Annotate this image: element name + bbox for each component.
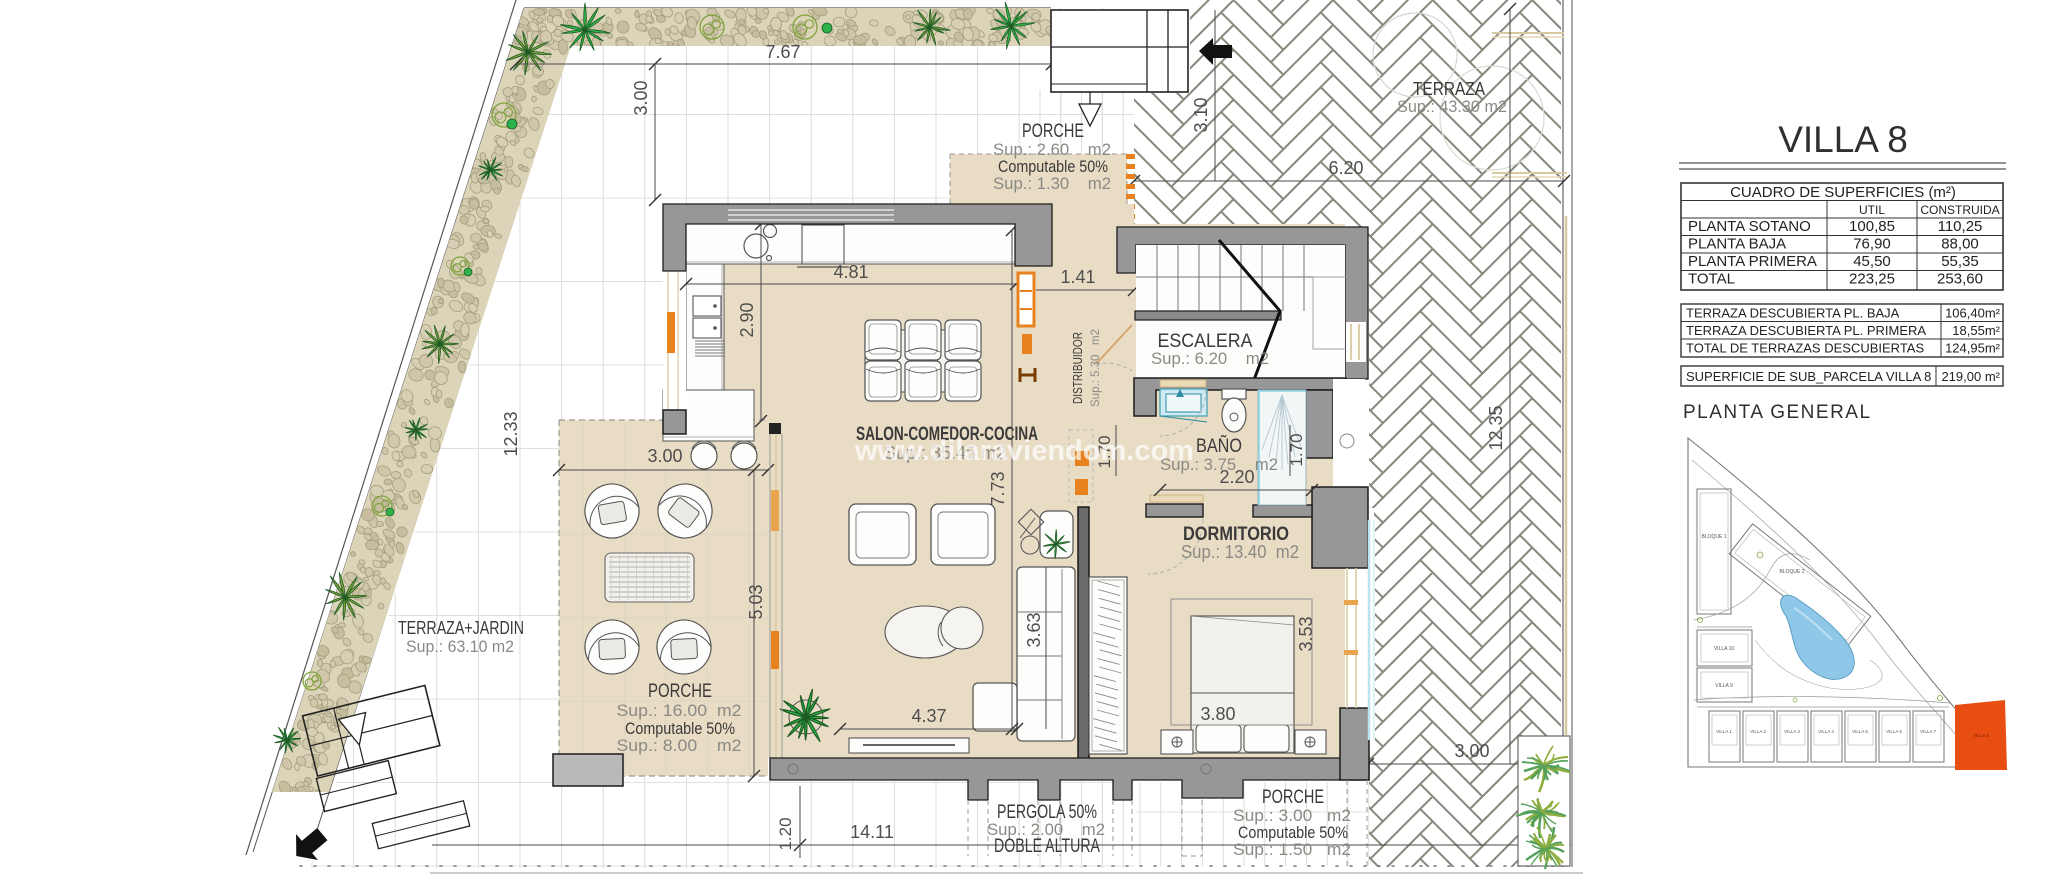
svg-text:VILLA 7: VILLA 7 (1920, 729, 1936, 734)
svg-text:Sup.: 63.10 m2: Sup.: 63.10 m2 (406, 637, 514, 656)
svg-text:TERRAZA DESCUBIERTA PL. BAJA: TERRAZA DESCUBIERTA PL. BAJA (1686, 306, 1900, 321)
svg-text:Sup.: 1.30 m2: Sup.: 1.30 m2 (993, 174, 1111, 193)
svg-text:1.70: 1.70 (1287, 433, 1306, 466)
svg-text:106,40m²: 106,40m² (1945, 306, 2001, 321)
svg-text:1.20: 1.20 (776, 817, 795, 850)
svg-text:124,95m²: 124,95m² (1945, 341, 2001, 356)
svg-text:CUADRO DE SUPERFICIES (m²): CUADRO DE SUPERFICIES (m²) (1730, 184, 1956, 201)
svg-text:Sup.: 6.20 m2: Sup.: 6.20 m2 (1151, 349, 1269, 368)
svg-text:76,90: 76,90 (1853, 236, 1891, 253)
svg-text:219,00 m²: 219,00 m² (1941, 369, 2000, 384)
svg-text:253,60: 253,60 (1937, 271, 1983, 288)
svg-text:BAÑO: BAÑO (1196, 435, 1242, 457)
svg-text:VILLA 10: VILLA 10 (1714, 646, 1735, 652)
svg-text:TOTAL: TOTAL (1688, 271, 1735, 288)
svg-text:Sup.: 13.40 m2: Sup.: 13.40 m2 (1181, 542, 1299, 562)
svg-text:3.00: 3.00 (1454, 741, 1489, 761)
svg-text:www.dilaraviendom.com: www.dilaraviendom.com (854, 435, 1194, 467)
svg-text:Sup.: 43.30 m2: Sup.: 43.30 m2 (1397, 97, 1507, 116)
svg-text:Sup.: 8.00 m2: Sup.: 8.00 m2 (617, 736, 742, 755)
svg-text:4.81: 4.81 (833, 262, 868, 282)
svg-text:VILLA 3: VILLA 3 (1784, 729, 1800, 734)
svg-text:45,50: 45,50 (1853, 253, 1891, 270)
svg-text:PORCHE: PORCHE (648, 681, 712, 702)
svg-text:DOBLE ALTURA: DOBLE ALTURA (994, 836, 1100, 857)
svg-text:2.90: 2.90 (737, 302, 757, 337)
svg-text:5.03: 5.03 (746, 584, 766, 619)
svg-text:DISTRIBUIDOR: DISTRIBUIDOR (1070, 332, 1085, 404)
svg-text:2.20: 2.20 (1219, 467, 1254, 487)
svg-text:SUPERFICIE DE SUB_PARCELA VILL: SUPERFICIE DE SUB_PARCELA VILLA 8 (1686, 369, 1931, 384)
svg-text:BLOQUE 2: BLOQUE 2 (1779, 569, 1804, 575)
svg-text:VILLA 5: VILLA 5 (1852, 729, 1868, 734)
svg-text:110,25: 110,25 (1938, 218, 1983, 235)
svg-text:18,55m²: 18,55m² (1952, 323, 2000, 338)
svg-text:14.11: 14.11 (850, 822, 894, 842)
svg-text:55,35: 55,35 (1941, 253, 1979, 270)
svg-text:Sup.: 1.50 m2: Sup.: 1.50 m2 (1233, 840, 1351, 859)
svg-text:3.10: 3.10 (1191, 97, 1211, 132)
svg-text:3.00: 3.00 (647, 446, 682, 466)
svg-text:7.67: 7.67 (765, 42, 800, 62)
svg-text:12.33: 12.33 (501, 411, 521, 456)
svg-text:PLANTA SOTANO: PLANTA SOTANO (1688, 218, 1811, 235)
svg-text:1.41: 1.41 (1060, 267, 1095, 287)
svg-text:VILLA 6: VILLA 6 (1886, 729, 1902, 734)
svg-text:Sup.: 5.30 m2: Sup.: 5.30 m2 (1088, 329, 1102, 407)
svg-text:3.00: 3.00 (631, 80, 651, 115)
svg-text:PLANTA BAJA: PLANTA BAJA (1688, 236, 1786, 253)
svg-text:223,25: 223,25 (1849, 271, 1895, 288)
svg-text:VILLA 8: VILLA 8 (1973, 733, 1989, 738)
svg-text:TERRAZA DESCUBIERTA PL. PRIMER: TERRAZA DESCUBIERTA PL. PRIMERA (1686, 323, 1926, 338)
svg-text:CONSTRUIDA: CONSTRUIDA (1920, 203, 1999, 217)
svg-text:TERRAZA+JARDIN: TERRAZA+JARDIN (398, 618, 524, 638)
svg-text:VILLA 4: VILLA 4 (1818, 729, 1834, 734)
svg-text:3.63: 3.63 (1024, 612, 1044, 647)
svg-text:VILLA 1: VILLA 1 (1716, 729, 1732, 734)
svg-text:PLANTA PRIMERA: PLANTA PRIMERA (1688, 253, 1817, 270)
svg-text:BLOQUE 1: BLOQUE 1 (1701, 534, 1726, 540)
svg-text:TOTAL DE TERRAZAS DESCUBIERTAS: TOTAL DE TERRAZAS DESCUBIERTAS (1686, 341, 1924, 356)
svg-text:PORCHE: PORCHE (1262, 787, 1324, 808)
svg-text:4.37: 4.37 (911, 706, 946, 726)
svg-text:PORCHE: PORCHE (1022, 121, 1084, 142)
svg-text:Sup.: 16.00 m2: Sup.: 16.00 m2 (617, 701, 742, 720)
svg-text:VILLA 2: VILLA 2 (1750, 729, 1766, 734)
svg-text:6.20: 6.20 (1328, 158, 1363, 178)
svg-text:PLANTA GENERAL: PLANTA GENERAL (1683, 402, 1872, 423)
svg-text:7.73: 7.73 (988, 471, 1008, 506)
svg-text:88,00: 88,00 (1941, 236, 1979, 253)
svg-text:3.80: 3.80 (1200, 704, 1235, 724)
svg-text:100,85: 100,85 (1849, 218, 1895, 235)
svg-text:VILLA 8: VILLA 8 (1778, 119, 1908, 160)
svg-text:VILLA 9: VILLA 9 (1715, 683, 1733, 689)
svg-text:UTIL: UTIL (1859, 203, 1885, 217)
svg-text:TERRAZA: TERRAZA (1413, 79, 1485, 99)
svg-text:3.53: 3.53 (1296, 616, 1316, 651)
svg-text:12.35: 12.35 (1486, 405, 1506, 450)
